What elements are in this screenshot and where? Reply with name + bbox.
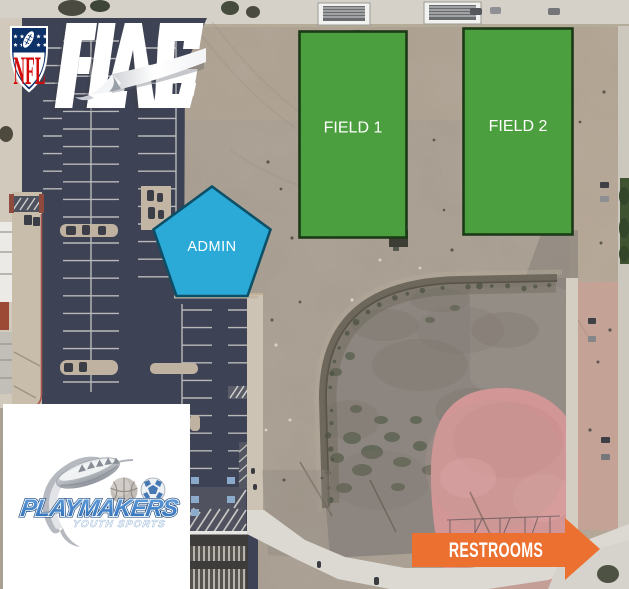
svg-text:PLAYMAKERS: PLAYMAKERS <box>19 495 180 522</box>
svg-text:NFL: NFL <box>14 49 46 94</box>
svg-text:FIELD 2: FIELD 2 <box>489 118 548 135</box>
svg-text:ADMIN: ADMIN <box>187 239 236 255</box>
svg-text:RESTROOMS: RESTROOMS <box>449 538 543 562</box>
svg-text:FIELD 1: FIELD 1 <box>324 120 383 137</box>
svg-text:YOUTH SPORTS: YOUTH SPORTS <box>72 519 167 530</box>
